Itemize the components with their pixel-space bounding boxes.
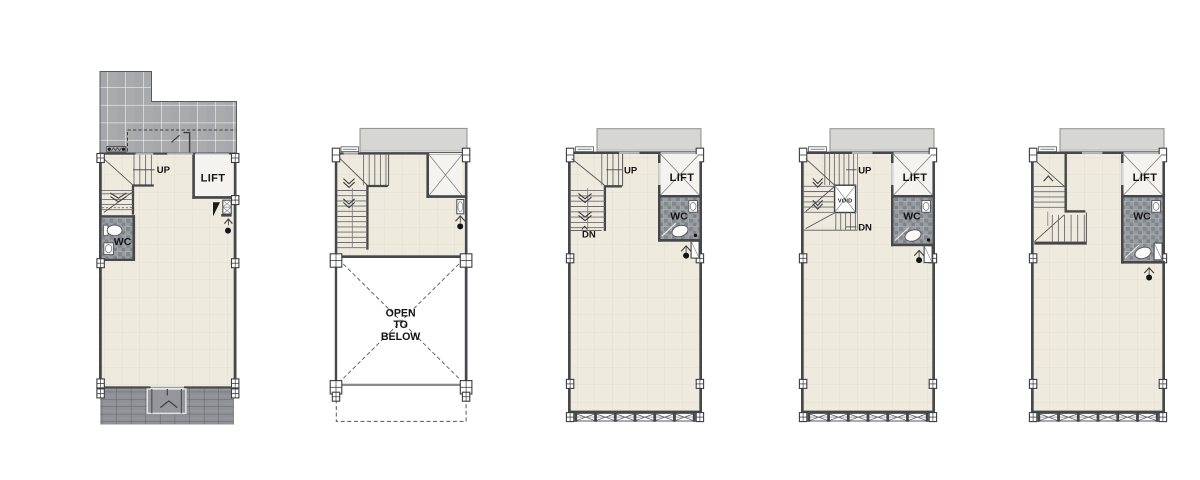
svg-text:VOID: VOID <box>838 199 852 205</box>
svg-text:UP: UP <box>858 165 872 176</box>
svg-text:WC: WC <box>670 211 688 223</box>
svg-text:UP: UP <box>624 165 638 176</box>
svg-text:BELOW: BELOW <box>381 331 420 343</box>
svg-text:LIFT: LIFT <box>201 172 226 184</box>
svg-text:UP: UP <box>157 165 171 176</box>
svg-text:TO: TO <box>393 319 408 331</box>
svg-text:OPEN: OPEN <box>386 307 416 319</box>
svg-text:DN: DN <box>582 229 596 240</box>
svg-text:LIFT: LIFT <box>1133 172 1158 184</box>
svg-text:WC: WC <box>1133 211 1151 223</box>
svg-text:DN: DN <box>858 222 872 233</box>
svg-text:WC: WC <box>114 236 132 248</box>
svg-text:WC: WC <box>903 211 921 223</box>
svg-text:LIFT: LIFT <box>903 172 928 184</box>
svg-text:LIFT: LIFT <box>670 172 695 184</box>
